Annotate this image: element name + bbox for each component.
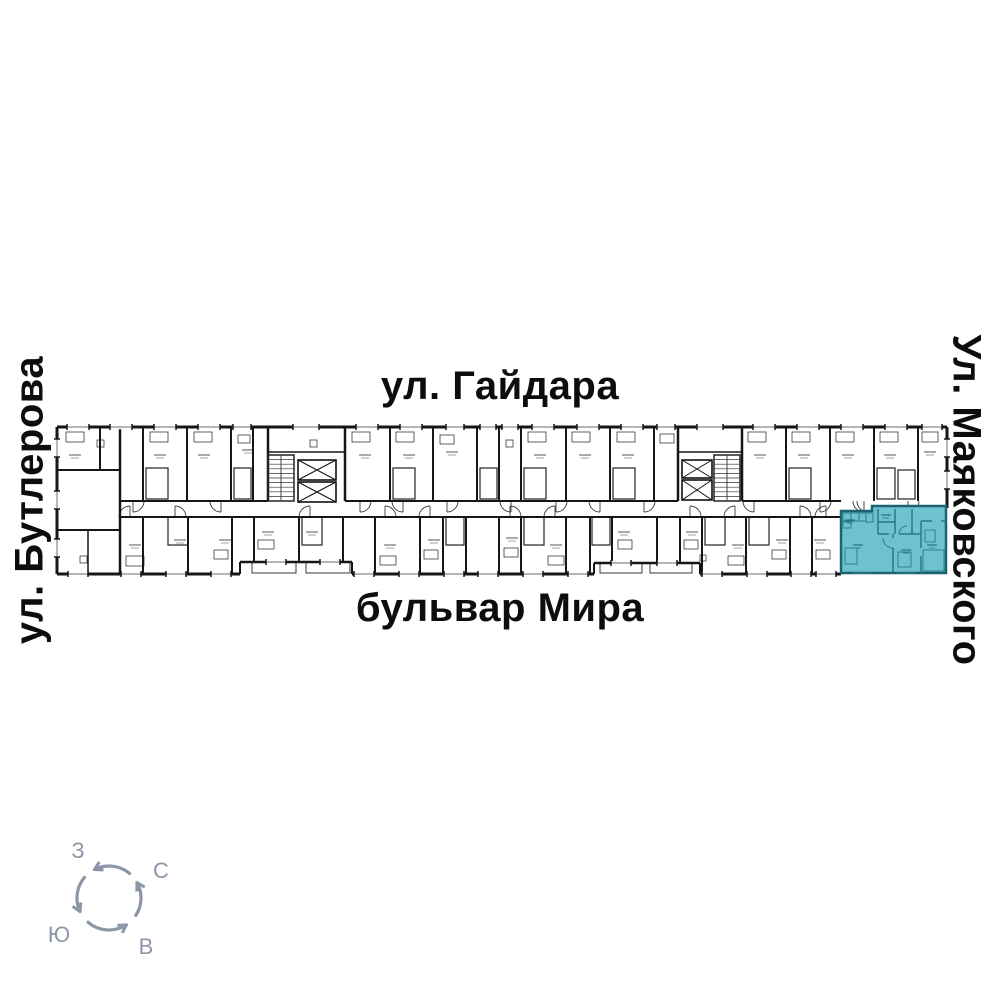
compass-icon [73, 862, 145, 933]
compass-west-label: З [71, 838, 84, 864]
floor-plan [0, 0, 1000, 1000]
compass-south-label: Ю [48, 922, 70, 948]
street-label-bottom: бульвар Мира [0, 586, 1000, 631]
street-label-left: ул. Бутлерова [8, 356, 53, 644]
street-label-right: Ул. Маяковского [944, 334, 989, 665]
page: ул. Гайдара бульвар Мира ул. Бутлерова У… [0, 0, 1000, 1000]
compass-north-label: С [153, 858, 169, 884]
selected-apartment[interactable] [841, 506, 946, 573]
compass-east-label: В [139, 934, 154, 960]
street-label-top: ул. Гайдара [0, 364, 1000, 409]
plan-walls [57, 427, 947, 574]
plan-details [66, 432, 938, 573]
